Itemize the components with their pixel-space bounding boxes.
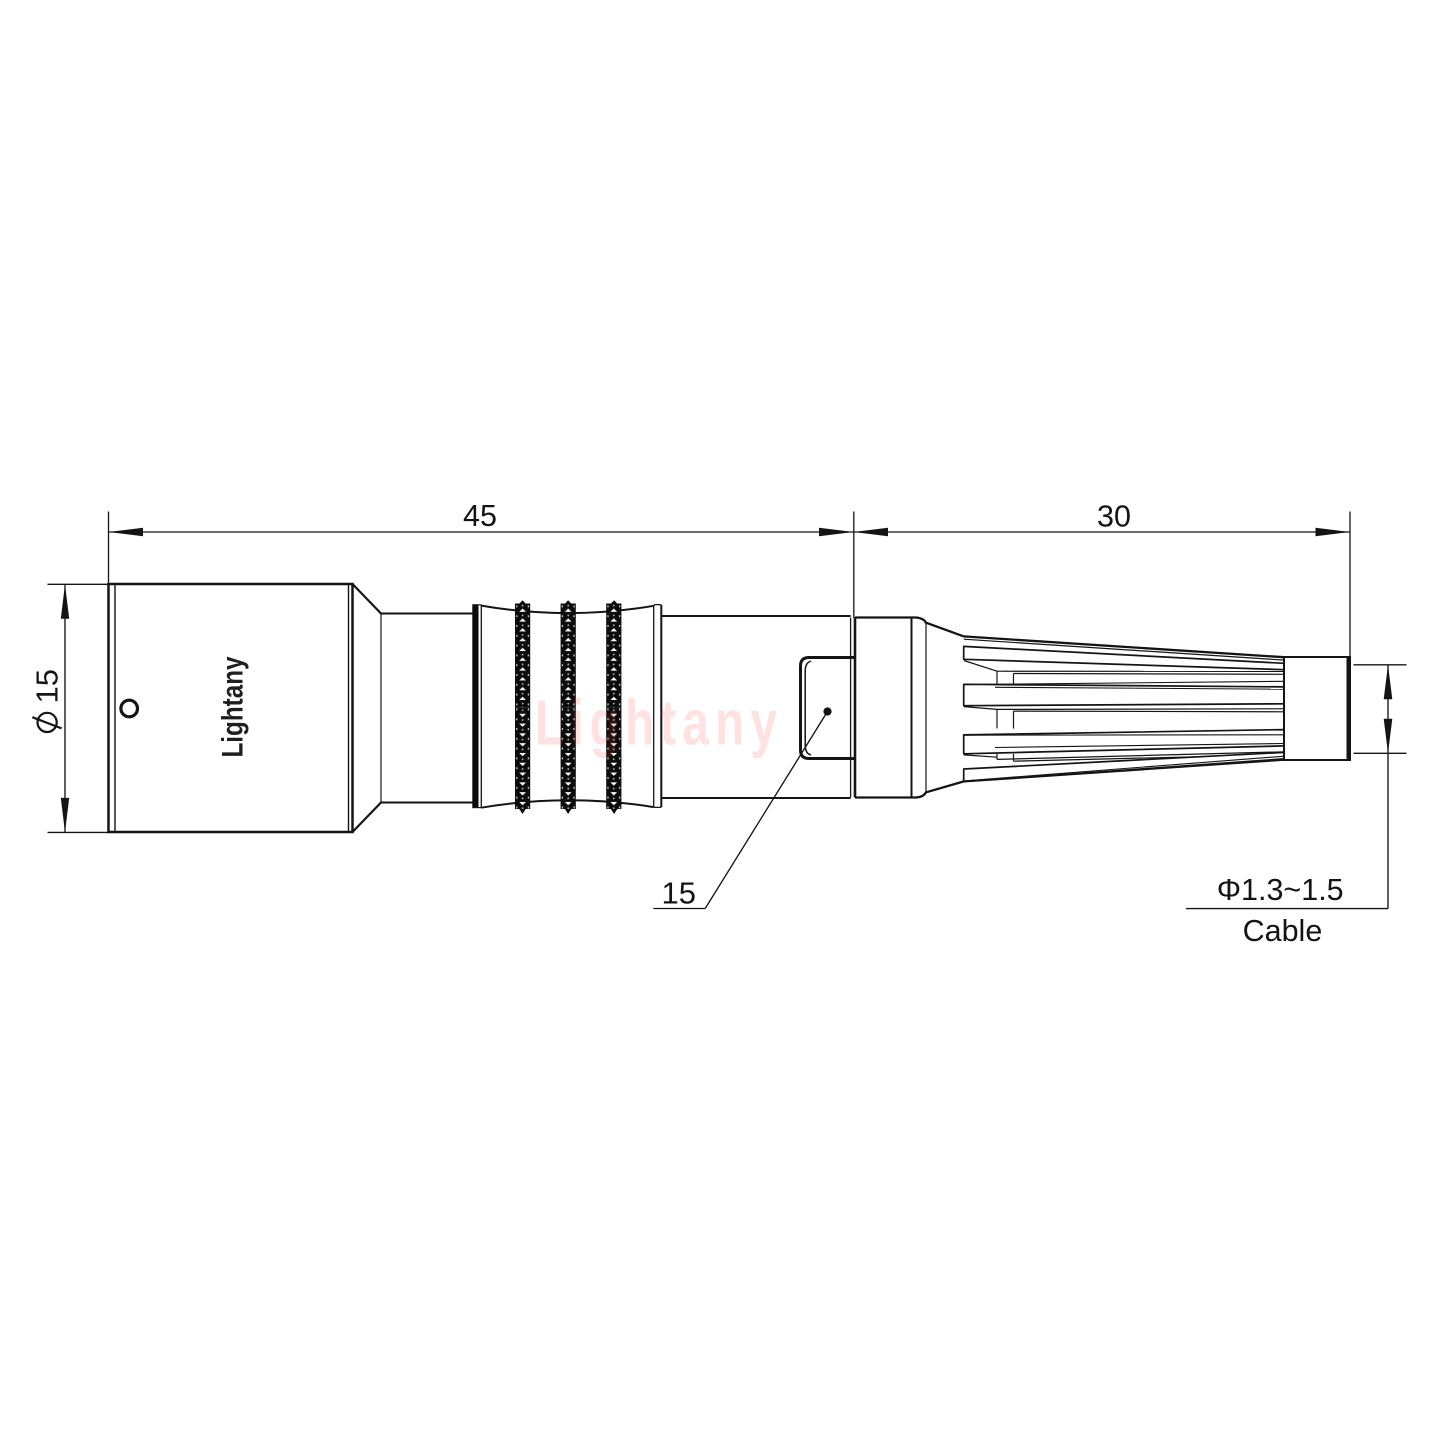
svg-text:15: 15 [30,669,65,703]
svg-text:Φ1.3~1.5: Φ1.3~1.5 [1217,873,1344,907]
svg-text:45: 45 [463,499,497,533]
svg-text:Cable: Cable [1243,914,1323,948]
svg-text:30: 30 [1097,500,1131,534]
svg-text:Lightany: Lightany [217,656,250,757]
svg-text:15: 15 [662,876,696,911]
